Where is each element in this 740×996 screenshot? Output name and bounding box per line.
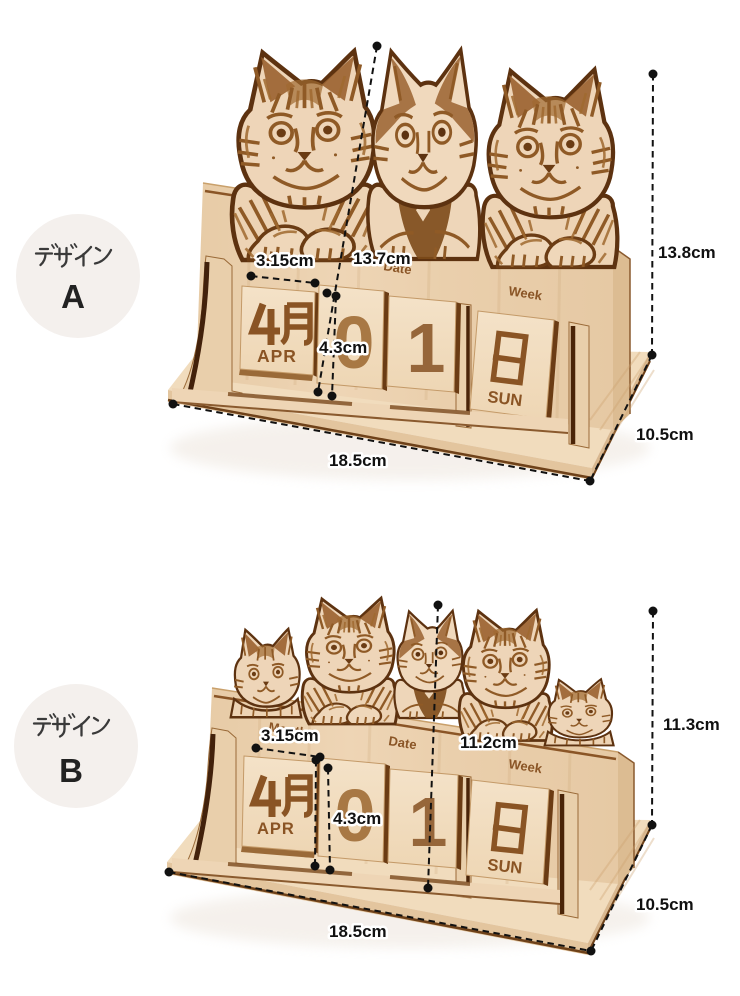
svg-text:APR: APR	[257, 346, 297, 366]
svg-text:18.5cm: 18.5cm	[329, 922, 387, 941]
svg-text:B: B	[59, 752, 83, 789]
svg-text:3.15cm: 3.15cm	[256, 251, 314, 270]
svg-text:3.15cm: 3.15cm	[261, 726, 319, 745]
svg-text:1: 1	[409, 783, 448, 861]
svg-text:1: 1	[407, 309, 446, 387]
svg-text:4.3cm: 4.3cm	[319, 338, 367, 357]
svg-text:13.8cm: 13.8cm	[658, 243, 716, 262]
svg-text:13.7cm: 13.7cm	[353, 249, 411, 268]
svg-text:10.5cm: 10.5cm	[636, 425, 694, 444]
svg-text:4.3cm: 4.3cm	[333, 809, 381, 828]
svg-text:SUN: SUN	[487, 856, 524, 878]
svg-text:A: A	[61, 278, 85, 315]
svg-text:11.3cm: 11.3cm	[663, 715, 720, 734]
svg-text:10.5cm: 10.5cm	[636, 895, 694, 914]
svg-text:APR: APR	[257, 820, 295, 838]
svg-text:18.5cm: 18.5cm	[329, 451, 387, 470]
svg-text:11.2cm: 11.2cm	[460, 733, 517, 752]
